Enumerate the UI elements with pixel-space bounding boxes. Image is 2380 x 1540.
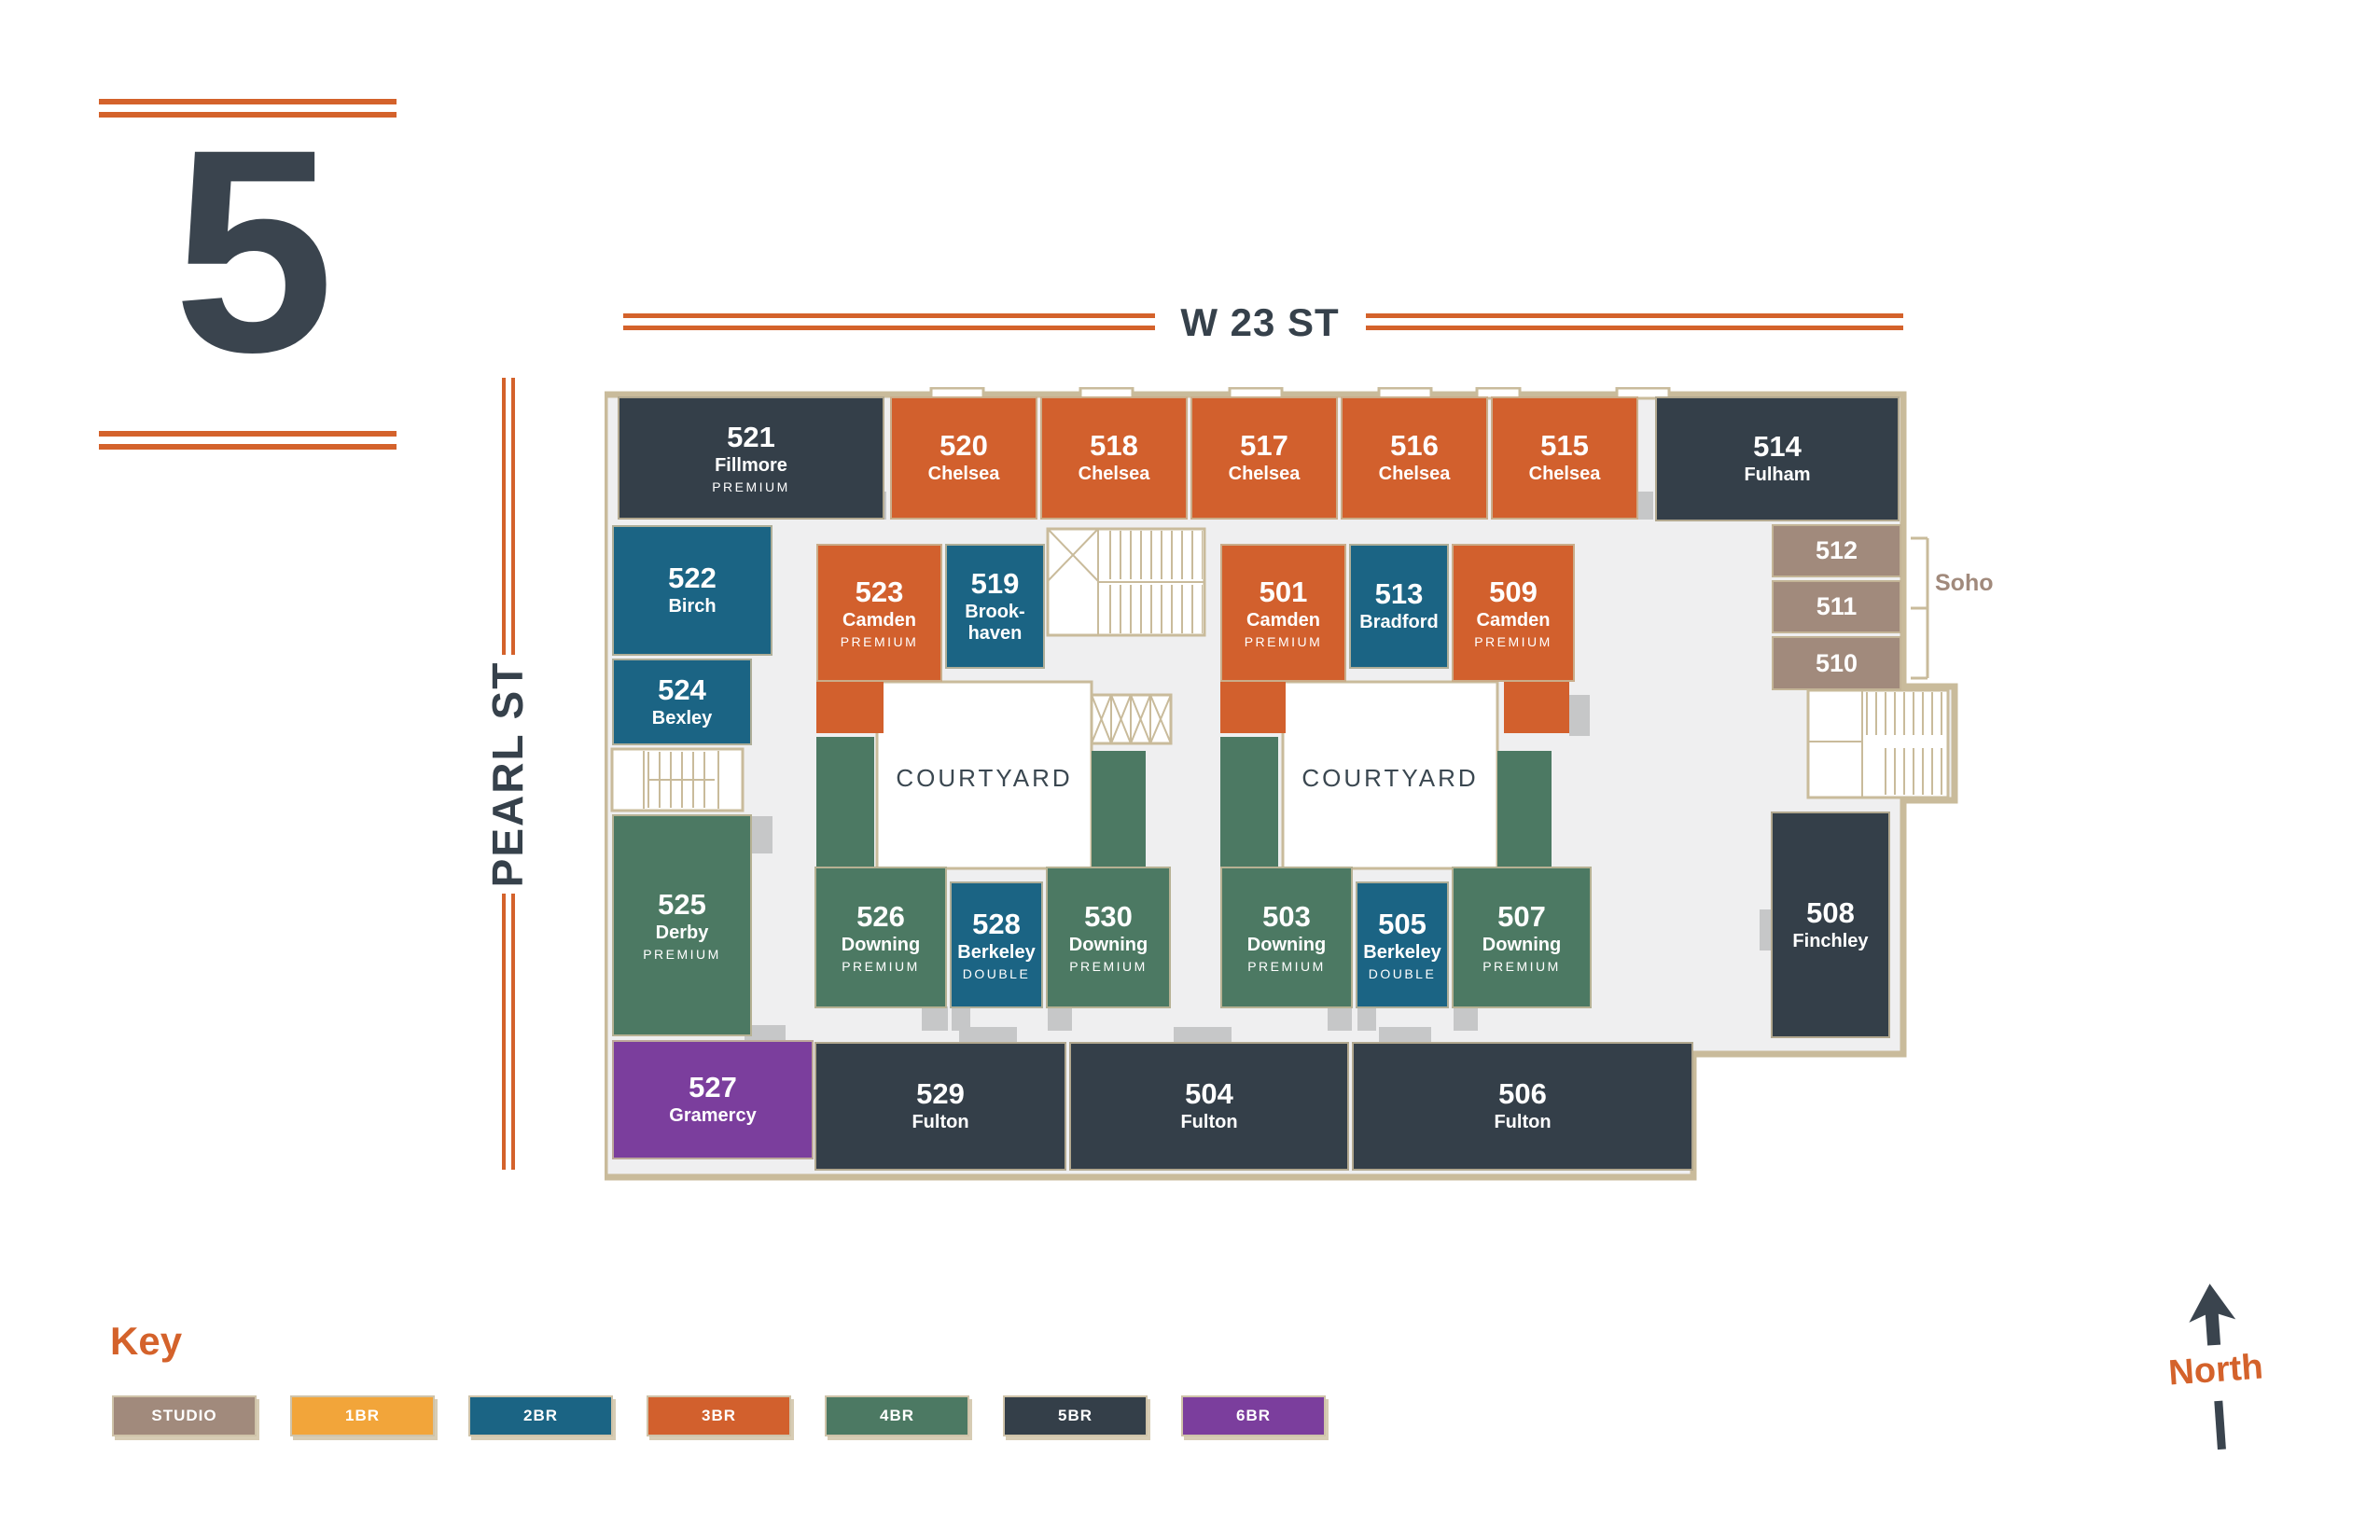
unit-511[interactable]: 511 (1772, 580, 1901, 633)
unit-name: Downing (842, 935, 920, 955)
unit-number: 525 (658, 890, 706, 919)
unit-tier: PREMIUM (841, 635, 919, 648)
legend-chip-4br: 4BR (825, 1395, 969, 1436)
street-rule-right (1366, 313, 1903, 330)
unit-name: Bradford (1359, 612, 1438, 632)
unit-520[interactable]: 520Chelsea (890, 396, 1037, 520)
unit-name: Fillmore (715, 455, 787, 476)
unit-522[interactable]: 522Birch (612, 525, 772, 656)
unit-526[interactable]: 526DowningPREMIUM (814, 867, 947, 1008)
unit-number: 504 (1185, 1079, 1233, 1108)
unit-number: 526 (856, 902, 905, 931)
unit-tier: PREMIUM (643, 948, 721, 961)
north-label: North (2136, 1345, 2297, 1396)
street-rule-bottom (502, 894, 515, 1170)
legend-chip-3br: 3BR (647, 1395, 791, 1436)
unit-516[interactable]: 516Chelsea (1341, 396, 1488, 520)
unit-name: Downing (1247, 935, 1326, 955)
courtyard-label-east: COURTYARD (1250, 764, 1530, 793)
unit-528[interactable]: 528BerkeleyDOUBLE (950, 881, 1043, 1008)
unit-number: 507 (1497, 902, 1546, 931)
north-arrow-shaft (2214, 1401, 2226, 1450)
unit-524[interactable]: 524Bexley (612, 659, 752, 745)
unit-number: 518 (1090, 431, 1138, 460)
unit-518[interactable]: 518Chelsea (1040, 396, 1188, 520)
unit-extension (816, 682, 884, 733)
unit-name: Camden (1477, 610, 1551, 631)
unit-name: Fulham (1744, 465, 1810, 485)
unit-number: 528 (972, 909, 1021, 938)
soho-bracket (1911, 538, 1928, 678)
unit-name: Berkeley (1363, 942, 1441, 963)
unit-number: 505 (1378, 909, 1427, 938)
unit-extension (1220, 682, 1286, 733)
unit-extension (816, 737, 874, 867)
unit-name: Berkeley (957, 942, 1035, 963)
building-plan: 521FillmorePREMIUM520Chelsea518Chelsea51… (605, 387, 1967, 1189)
unit-number: 530 (1084, 902, 1133, 931)
legend-chip-6br: 6BR (1181, 1395, 1326, 1436)
unit-number: 511 (1816, 594, 1858, 619)
unit-529[interactable]: 529Fulton (814, 1042, 1066, 1171)
unit-506[interactable]: 506Fulton (1352, 1042, 1693, 1171)
unit-number: 523 (856, 577, 904, 606)
unit-tier: PREMIUM (1069, 960, 1148, 973)
unit-number: 516 (1390, 431, 1439, 460)
unit-name: Finchley (1792, 931, 1868, 951)
unit-512[interactable]: 512 (1772, 524, 1901, 577)
floor-number: 5 (110, 138, 390, 364)
unit-name: Downing (1482, 935, 1561, 955)
unit-tier: PREMIUM (842, 960, 920, 973)
unit-513[interactable]: 513Bradford (1349, 544, 1449, 669)
unit-name: Chelsea (1379, 464, 1451, 484)
unit-number: 506 (1498, 1079, 1547, 1108)
street-label-w23: W 23 ST (1155, 300, 1365, 345)
unit-name: Bexley (652, 708, 713, 728)
unit-number: 524 (658, 675, 706, 704)
unit-504[interactable]: 504Fulton (1069, 1042, 1349, 1171)
unit-number: 503 (1262, 902, 1311, 931)
unit-tier: PREMIUM (1474, 635, 1552, 648)
street-label-pearl: PEARL ST (482, 634, 538, 914)
legend-chip-2br: 2BR (468, 1395, 613, 1436)
unit-name: Chelsea (1529, 464, 1601, 484)
unit-extension (1220, 737, 1278, 867)
unit-number: 514 (1753, 432, 1802, 461)
unit-number: 522 (668, 563, 717, 592)
unit-name: Chelsea (1079, 464, 1150, 484)
unit-name: Camden (1246, 610, 1320, 631)
unit-number: 517 (1240, 431, 1288, 460)
unit-name: Birch (668, 596, 716, 617)
unit-510[interactable]: 510 (1772, 636, 1901, 690)
unit-515[interactable]: 515Chelsea (1491, 396, 1638, 520)
legend-chip-1br: 1BR (290, 1395, 435, 1436)
unit-number: 509 (1489, 577, 1538, 606)
legend-chip-studio: STUDIO (112, 1395, 257, 1436)
unit-527[interactable]: 527Gramercy (612, 1040, 814, 1159)
soho-label: Soho (1935, 570, 1994, 597)
stairwell-west-wall (612, 749, 743, 811)
unit-tier: DOUBLE (1369, 967, 1437, 980)
unit-name: Brook- haven (965, 602, 1024, 644)
unit-name: Fulton (1180, 1112, 1237, 1132)
unit-tier: DOUBLE (963, 967, 1031, 980)
unit-503[interactable]: 503DowningPREMIUM (1220, 867, 1353, 1008)
unit-number: 515 (1540, 431, 1589, 460)
unit-name: Chelsea (1229, 464, 1301, 484)
courtyard-label-west: COURTYARD (844, 764, 1124, 793)
north-arrow-icon (2131, 1276, 2293, 1353)
unit-525[interactable]: 525DerbyPREMIUM (612, 814, 752, 1036)
unit-501[interactable]: 501CamdenPREMIUM (1220, 544, 1346, 682)
unit-tier: PREMIUM (712, 480, 790, 493)
unit-number: 529 (916, 1079, 965, 1108)
legend-chip-5br: 5BR (1003, 1395, 1148, 1436)
legend: STUDIO1BR2BR3BR4BR5BR6BR (112, 1395, 1326, 1436)
unit-521[interactable]: 521FillmorePREMIUM (618, 396, 884, 520)
unit-number: 510 (1816, 651, 1858, 676)
elevator-bank-west (1092, 695, 1171, 743)
unit-name: Fulton (1494, 1112, 1551, 1132)
unit-517[interactable]: 517Chelsea (1190, 396, 1338, 520)
unit-name: Fulton (912, 1112, 968, 1132)
street-rule-top (502, 378, 515, 655)
north-indicator: North (2131, 1276, 2302, 1464)
stairwell-core-east (1808, 690, 1948, 798)
unit-number: 508 (1806, 898, 1855, 927)
unit-519[interactable]: 519Brook- haven (945, 544, 1045, 669)
floorplan-page: 5 W 23 ST PEARL ST (0, 0, 2380, 1540)
unit-number: 521 (727, 423, 775, 451)
unit-number: 527 (689, 1073, 737, 1102)
unit-530[interactable]: 530DowningPREMIUM (1046, 867, 1171, 1008)
unit-number: 512 (1816, 538, 1858, 563)
unit-tier: PREMIUM (1245, 635, 1323, 648)
decorative-rule (99, 431, 397, 450)
unit-tier: PREMIUM (1247, 960, 1326, 973)
unit-number: 520 (939, 431, 988, 460)
stairwell-core-west (1048, 529, 1204, 635)
unit-name: Chelsea (928, 464, 1000, 484)
unit-name: Gramercy (669, 1105, 756, 1126)
unit-523[interactable]: 523CamdenPREMIUM (816, 544, 942, 682)
unit-number: 513 (1375, 579, 1424, 608)
unit-514[interactable]: 514Fulham (1655, 396, 1900, 521)
street-rule-left (623, 313, 1155, 330)
unit-509[interactable]: 509CamdenPREMIUM (1452, 544, 1575, 682)
key-title: Key (110, 1319, 182, 1364)
unit-507[interactable]: 507DowningPREMIUM (1452, 867, 1592, 1008)
unit-number: 519 (971, 569, 1020, 598)
unit-505[interactable]: 505BerkeleyDOUBLE (1356, 881, 1449, 1008)
unit-name: Camden (842, 610, 916, 631)
unit-name: Derby (656, 923, 709, 943)
unit-508[interactable]: 508Finchley (1771, 812, 1890, 1038)
unit-extension (1504, 682, 1569, 733)
unit-name: Downing (1069, 935, 1148, 955)
unit-number: 501 (1260, 577, 1308, 606)
unit-tier: PREMIUM (1482, 960, 1561, 973)
